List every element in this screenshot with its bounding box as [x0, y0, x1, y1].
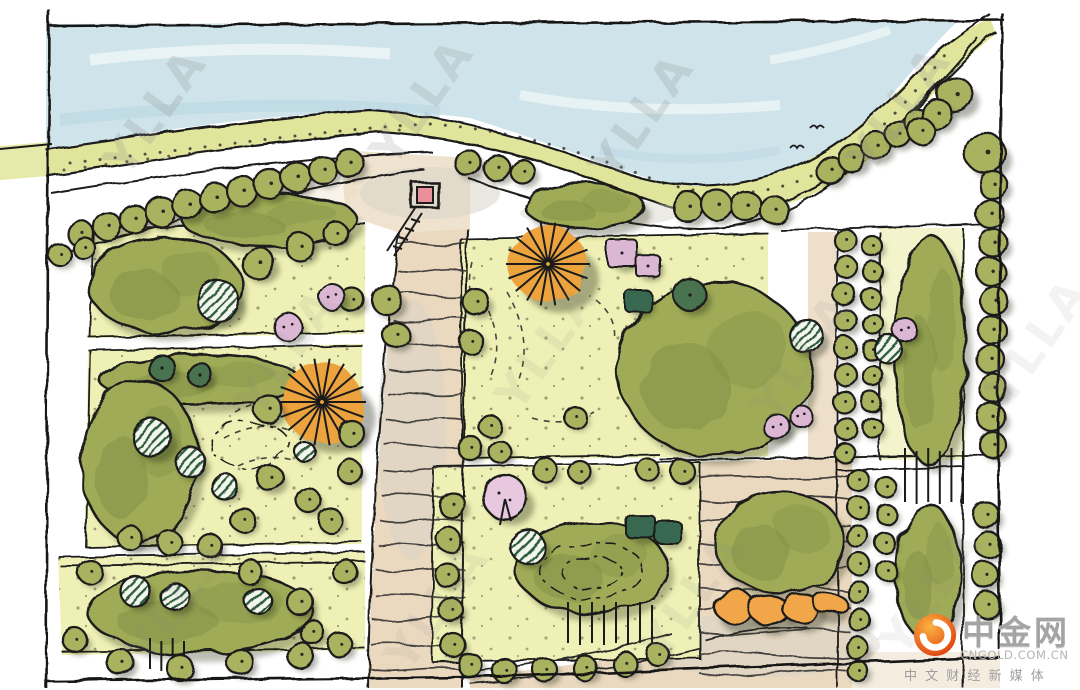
pavilion-roof [417, 187, 433, 203]
logo-brand-text: 中金网 [962, 606, 1070, 654]
logo-cngold: 中金网 CNGOLD.COM.CN 中 文 财 经 新 媒 体 [902, 608, 1074, 686]
site-plan-canvas: YLLAYLLAYLLAYLLAYLLAYLLAYLLAYLLAYLLAYLLA… [0, 0, 1080, 690]
cngold-logo-icon [912, 612, 958, 658]
site-plan-illustration: YLLAYLLAYLLAYLLAYLLAYLLAYLLAYLLAYLLAYLLA… [0, 0, 1080, 690]
tree-pinkq [636, 255, 664, 281]
logo-domain-text: CNGOLD.COM.CN [960, 648, 1069, 662]
logo-tagline-text: 中 文 财 经 新 媒 体 [904, 665, 1046, 684]
